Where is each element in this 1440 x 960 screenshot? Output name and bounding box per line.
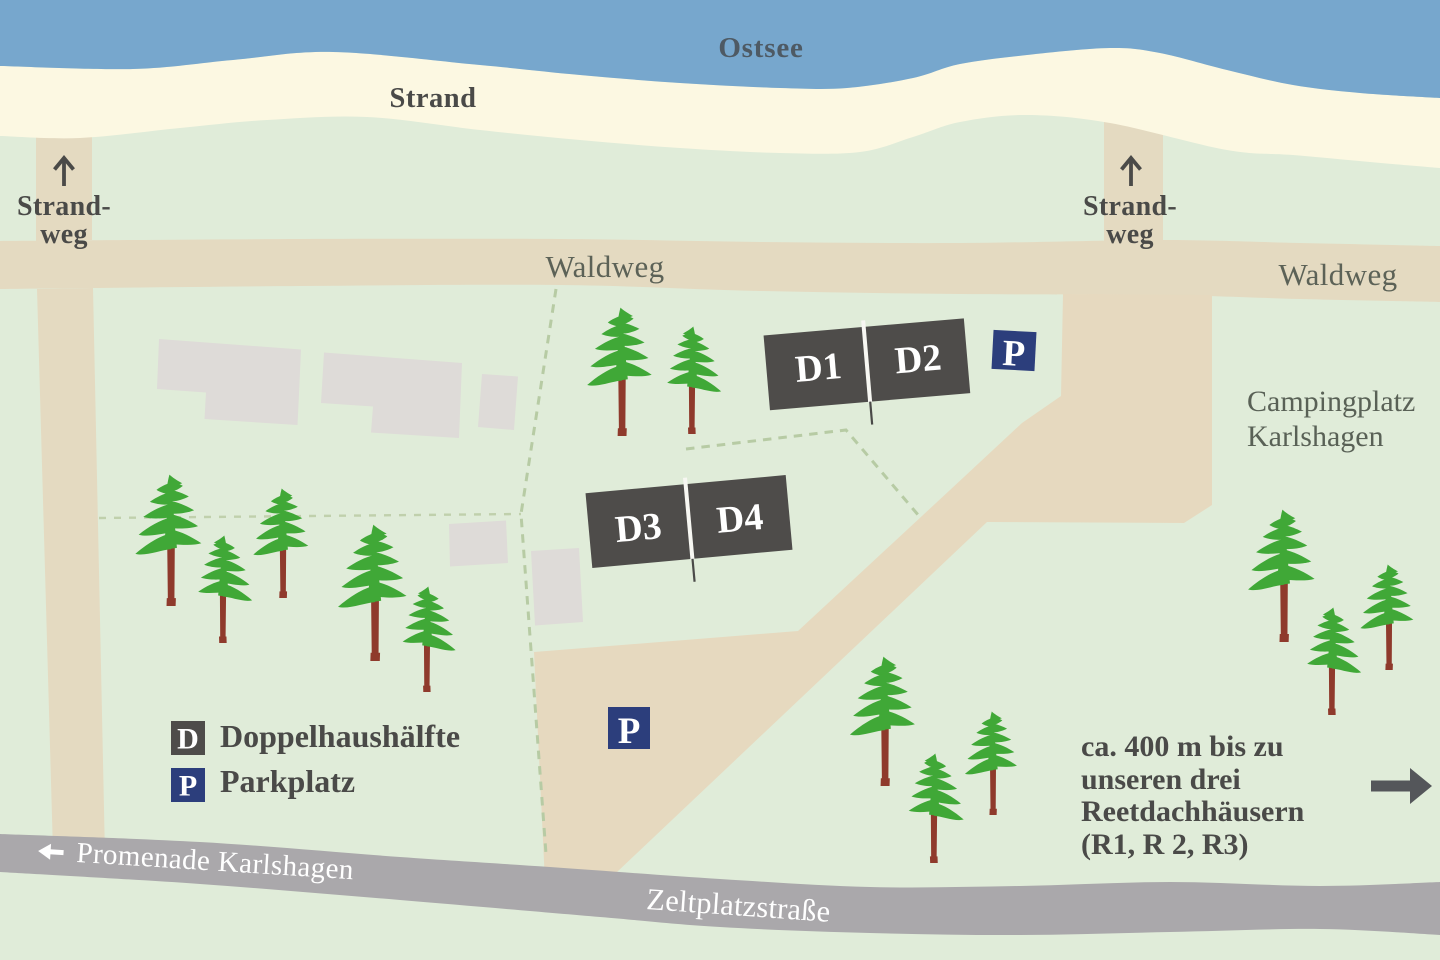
svg-text:Ostsee: Ostsee bbox=[718, 32, 803, 64]
svg-text:unseren drei: unseren drei bbox=[1081, 763, 1241, 796]
svg-text:P: P bbox=[179, 770, 197, 803]
svg-text:weg: weg bbox=[40, 219, 88, 250]
svg-text:Karlshagen: Karlshagen bbox=[1247, 420, 1384, 453]
svg-text:ca. 400 m bis zu: ca. 400 m bis zu bbox=[1081, 730, 1284, 763]
svg-text:D: D bbox=[177, 723, 199, 756]
svg-text:Strand: Strand bbox=[390, 83, 477, 114]
svg-text:Strand-: Strand- bbox=[1083, 191, 1177, 222]
svg-text:weg: weg bbox=[1106, 219, 1154, 250]
svg-text:Strand-: Strand- bbox=[17, 191, 111, 222]
svg-text:(R1, R 2, R3): (R1, R 2, R3) bbox=[1081, 828, 1248, 861]
svg-text:Waldweg: Waldweg bbox=[545, 249, 664, 284]
svg-text:P: P bbox=[1001, 333, 1026, 375]
svg-text:Waldweg: Waldweg bbox=[1278, 257, 1397, 292]
svg-text:D1: D1 bbox=[794, 345, 844, 391]
svg-text:Doppelhaushälfte: Doppelhaushälfte bbox=[220, 718, 460, 754]
svg-text:Parkplatz: Parkplatz bbox=[220, 763, 355, 799]
svg-text:Reetdachhäusern: Reetdachhäusern bbox=[1081, 795, 1305, 828]
svg-text:D3: D3 bbox=[613, 505, 663, 551]
svg-text:D4: D4 bbox=[715, 496, 765, 542]
svg-text:D2: D2 bbox=[893, 336, 943, 382]
svg-text:P: P bbox=[618, 711, 641, 752]
svg-text:Campingplatz: Campingplatz bbox=[1247, 385, 1415, 418]
